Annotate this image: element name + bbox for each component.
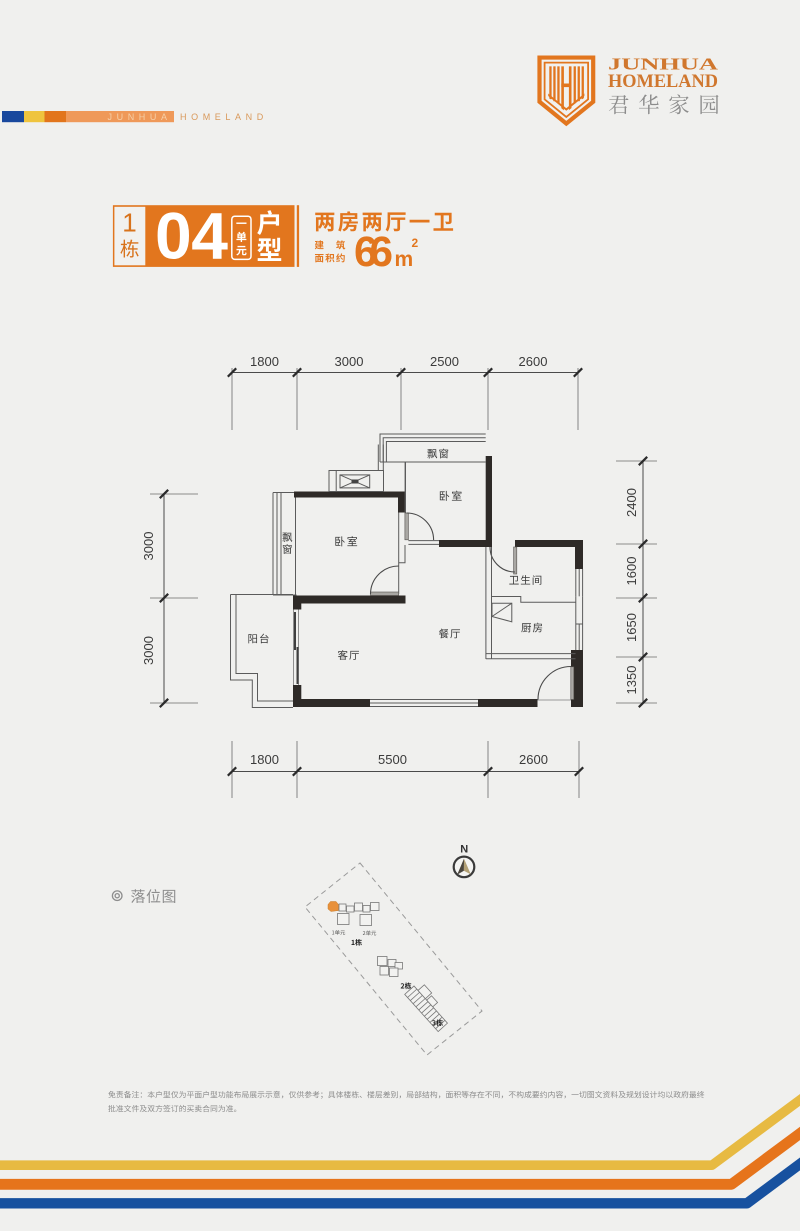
svg-text:2600: 2600 [519, 354, 548, 369]
svg-text:3000: 3000 [141, 636, 156, 665]
svg-text:1800: 1800 [250, 752, 279, 767]
svg-text:2500: 2500 [430, 354, 459, 369]
svg-text:HOMELAND: HOMELAND [180, 112, 268, 122]
svg-text:1350: 1350 [624, 666, 639, 695]
svg-text:3000: 3000 [141, 532, 156, 561]
svg-text:1800: 1800 [250, 354, 279, 369]
svg-text:N: N [460, 844, 468, 856]
svg-text:2400: 2400 [624, 488, 639, 517]
svg-text:2: 2 [412, 236, 419, 250]
svg-text:1600: 1600 [624, 557, 639, 586]
svg-text:1650: 1650 [624, 613, 639, 642]
svg-text:04: 04 [155, 199, 228, 273]
svg-text:5500: 5500 [378, 752, 407, 767]
svg-text:HOMELAND: HOMELAND [608, 71, 718, 92]
svg-text:3000: 3000 [335, 354, 364, 369]
svg-text:m: m [395, 248, 414, 271]
svg-text:JUNHUA: JUNHUA [108, 112, 172, 122]
svg-text:66: 66 [354, 229, 393, 276]
svg-text:1: 1 [122, 207, 136, 237]
svg-text:2600: 2600 [519, 752, 548, 767]
